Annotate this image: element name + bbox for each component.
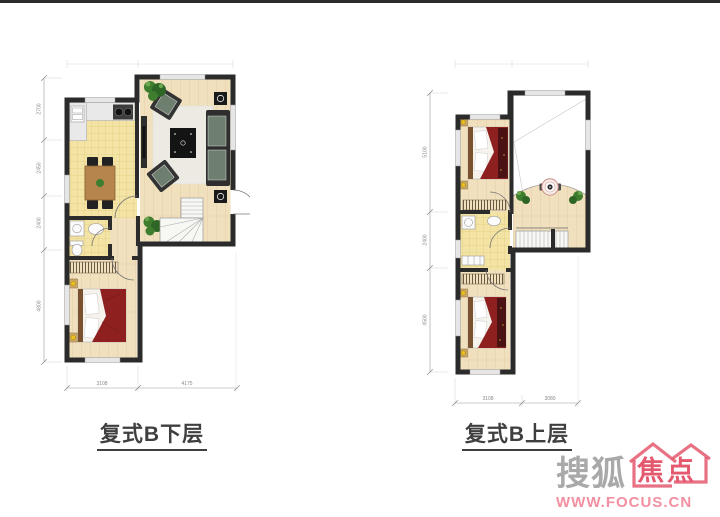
entry-door [233,190,250,214]
lamp [461,291,465,295]
svg-text:2400: 2400 [37,217,43,228]
washer [462,216,475,229]
hallway-floor [110,218,137,258]
svg-text:2700: 2700 [37,103,43,114]
window [456,300,461,336]
lower-floor-title: 复式B下层 [97,418,207,451]
window [160,75,205,80]
svg-text:3080: 3080 [544,396,555,402]
wardrobe [462,274,504,284]
house-logo-icon: 焦点 [628,441,716,491]
dimensions-upper-top [455,60,588,68]
lamp [461,183,465,187]
watermark-url: WWW.FOCUS.CN [556,494,716,511]
bed [468,297,506,348]
window [456,240,461,258]
window [470,115,500,120]
side-table [214,92,227,105]
svg-text:2450: 2450 [37,162,43,173]
svg-text:4175: 4175 [181,381,192,387]
floor-plan-upper: 5100 2400 4500 3108 3080 [418,60,603,415]
watermark-brand-red: 焦点 [637,455,697,486]
window [65,285,70,325]
dimensions-lower-top [67,60,233,68]
svg-text:3108: 3108 [482,396,493,402]
window [85,98,115,103]
stairs-upper [516,228,568,248]
basin [89,224,104,235]
image-top-border [0,0,720,3]
wardrobe [70,262,118,273]
watermark: 搜狐 焦点 WWW.FOCUS.CN [556,441,716,511]
wardrobe [463,200,506,210]
bed [468,127,508,179]
lamp [71,281,76,286]
window [231,105,236,150]
svg-text:5100: 5100 [423,146,429,157]
watermark-brand-gray: 搜狐 [556,457,626,491]
toilet [72,244,82,256]
washer [70,221,84,236]
sofa-cushion [208,116,226,146]
window [586,120,591,150]
svg-text:4500: 4500 [423,314,429,325]
svg-text:2400: 2400 [423,234,429,245]
stove [113,105,133,120]
side-table [214,190,227,203]
lamp [461,351,465,355]
window [456,130,461,166]
window [85,358,120,363]
svg-text:4800: 4800 [37,300,43,311]
dimensions-upper-left: 5100 2400 4500 [423,90,449,375]
tv [143,126,146,158]
window [525,91,565,96]
bed [78,289,126,342]
sofa-cushion [208,150,226,180]
dimensions-lower-left: 2700 2450 2400 4800 [37,75,63,365]
window [470,370,500,375]
coffee-table [170,128,196,158]
vanity [462,256,484,265]
svg-text:3108: 3108 [96,381,107,387]
window [65,175,70,203]
basin [488,216,501,226]
floor-plan-lower: 2700 2450 2400 4800 3108 4175 [35,55,250,400]
lamp [461,120,465,124]
lamp [71,335,76,340]
